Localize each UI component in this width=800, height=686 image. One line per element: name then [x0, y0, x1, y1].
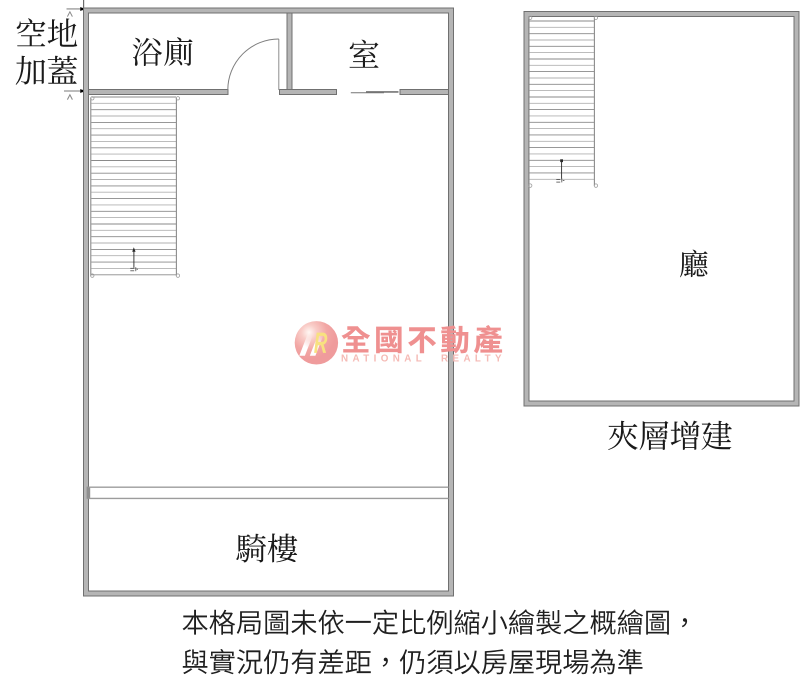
svg-text:NATIONAL REALTY: NATIONAL REALTY: [341, 354, 506, 365]
